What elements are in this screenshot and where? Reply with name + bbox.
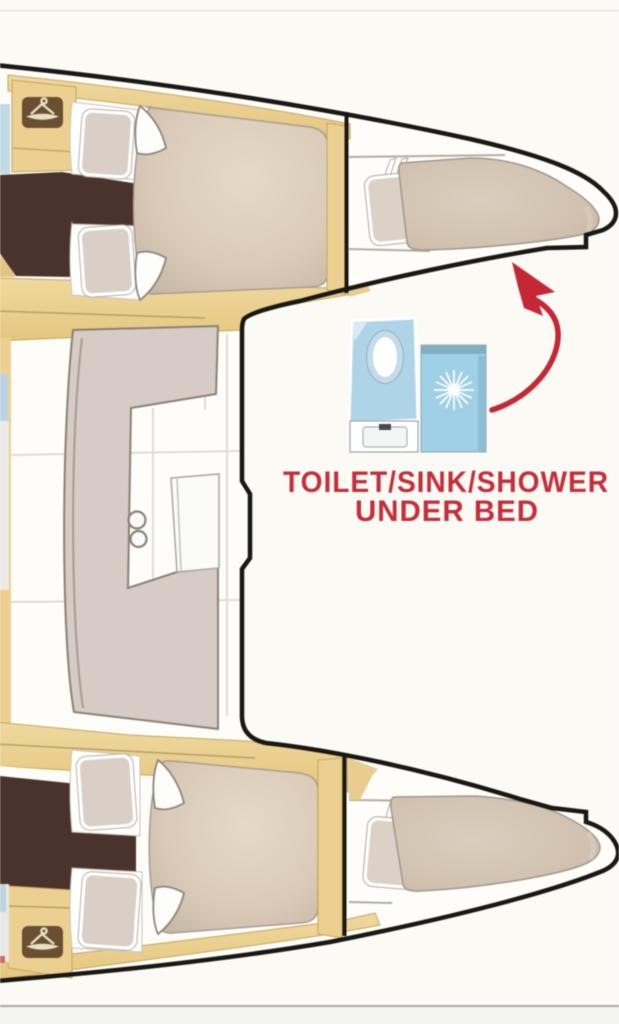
svg-text:UNDER BED: UNDER BED xyxy=(355,495,539,528)
